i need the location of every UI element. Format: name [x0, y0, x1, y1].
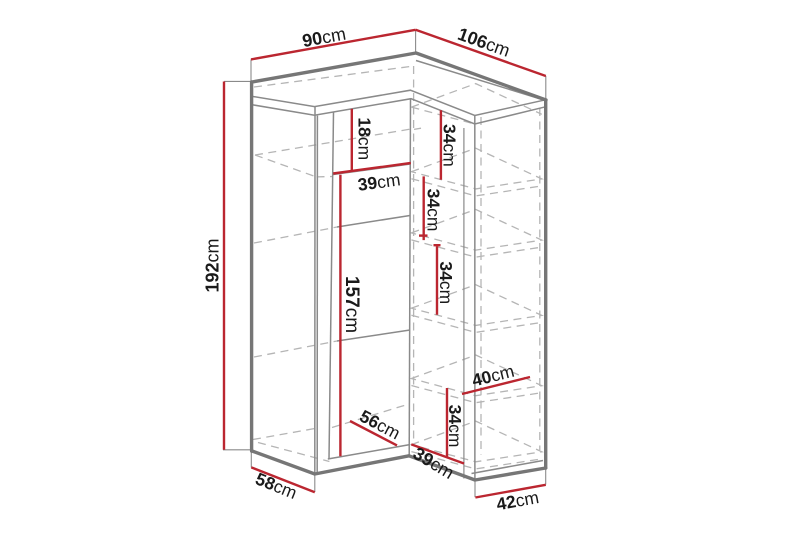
svg-text:34cm: 34cm [440, 124, 460, 167]
svg-text:34cm: 34cm [424, 189, 444, 232]
svg-text:34cm: 34cm [445, 405, 465, 448]
svg-text:192cm: 192cm [202, 238, 222, 292]
svg-text:18cm: 18cm [354, 117, 374, 160]
svg-text:34cm: 34cm [436, 261, 456, 304]
svg-text:157cm: 157cm [341, 276, 362, 333]
